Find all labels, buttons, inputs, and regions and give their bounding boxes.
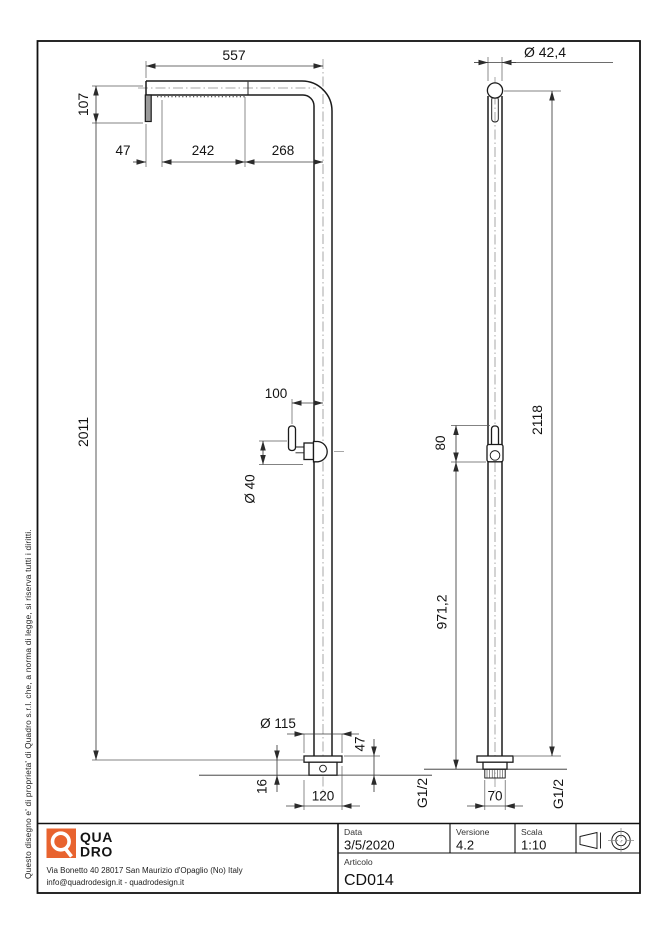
dim-seg-242: 242 (192, 143, 215, 158)
lever-grip (289, 426, 296, 451)
dim-seg-268: 268 (272, 143, 295, 158)
base-cover-plate (304, 756, 342, 762)
dim-tube-dia: Ø 42,4 (524, 44, 566, 60)
arm-tube-section (487, 83, 502, 98)
side-view: Ø 42,4 2118 80 971,2 70 G1/2 G1/2 (414, 44, 613, 810)
scale-value: 1:10 (521, 838, 546, 853)
side-cover-plate (477, 756, 513, 762)
dim-total-height: 2118 (529, 405, 545, 435)
company-contacts: info@quadrodesign.it - quadrodesign.it (47, 878, 185, 887)
company-block: QUA DRO Via Bonetto 40 28017 San Maurizi… (47, 829, 243, 888)
drawing-frame (38, 41, 641, 893)
lever-link (296, 447, 305, 453)
disclaimer-text: Questo disegno e' di proprieta' di Quadr… (23, 529, 33, 879)
dim-handle-len: 80 (433, 435, 448, 450)
shower-head (145, 95, 151, 122)
dim-base-w: 120 (312, 789, 335, 804)
dim-plate-h: 16 (255, 779, 270, 794)
version-label: Versione (456, 827, 490, 837)
base-body (309, 762, 337, 775)
brand-name-line2: DRO (80, 844, 113, 860)
dim-head-drop: 107 (75, 93, 91, 117)
dim-base-dia: Ø 115 (260, 716, 296, 731)
label-thread-left: G1/2 (414, 778, 430, 809)
dim-thread-size: 70 (487, 789, 502, 804)
article-value: CD014 (344, 872, 394, 889)
column-outer-edge (146, 81, 332, 756)
label-thread-right: G1/2 (550, 779, 566, 810)
technical-drawing: Questo disegno e' di proprieta' di Quadr… (0, 0, 665, 940)
article-label: Articolo (344, 857, 373, 867)
lever-hub (304, 443, 314, 460)
dim-handle-dia: Ø 40 (243, 474, 258, 503)
column-inner-edge (146, 95, 314, 756)
dim-column-height: 2011 (75, 417, 91, 447)
dim-arm-length: 557 (222, 47, 246, 63)
valve-body-side (487, 445, 503, 462)
side-base-body (483, 762, 507, 769)
date-value: 3/5/2020 (344, 838, 395, 853)
dim-base-h: 47 (353, 736, 368, 751)
scale-label: Scala (521, 827, 543, 837)
valve-cap (314, 442, 328, 462)
dim-handle-height: 971,2 (434, 594, 450, 629)
first-angle-projection-icon (580, 828, 634, 853)
front-view: 557 107 2011 47 242 268 100 Ø 40 (75, 47, 432, 810)
version-value: 4.2 (456, 838, 474, 853)
dim-handle-reach: 100 (265, 386, 288, 401)
company-address: Via Bonetto 40 28017 San Maurizio d'Opag… (47, 866, 243, 875)
thread-hatching (487, 770, 503, 778)
drawing-page: Questo disegno e' di proprieta' di Quadr… (0, 0, 665, 940)
date-label: Data (344, 827, 362, 837)
dim-seg-47: 47 (115, 143, 130, 158)
